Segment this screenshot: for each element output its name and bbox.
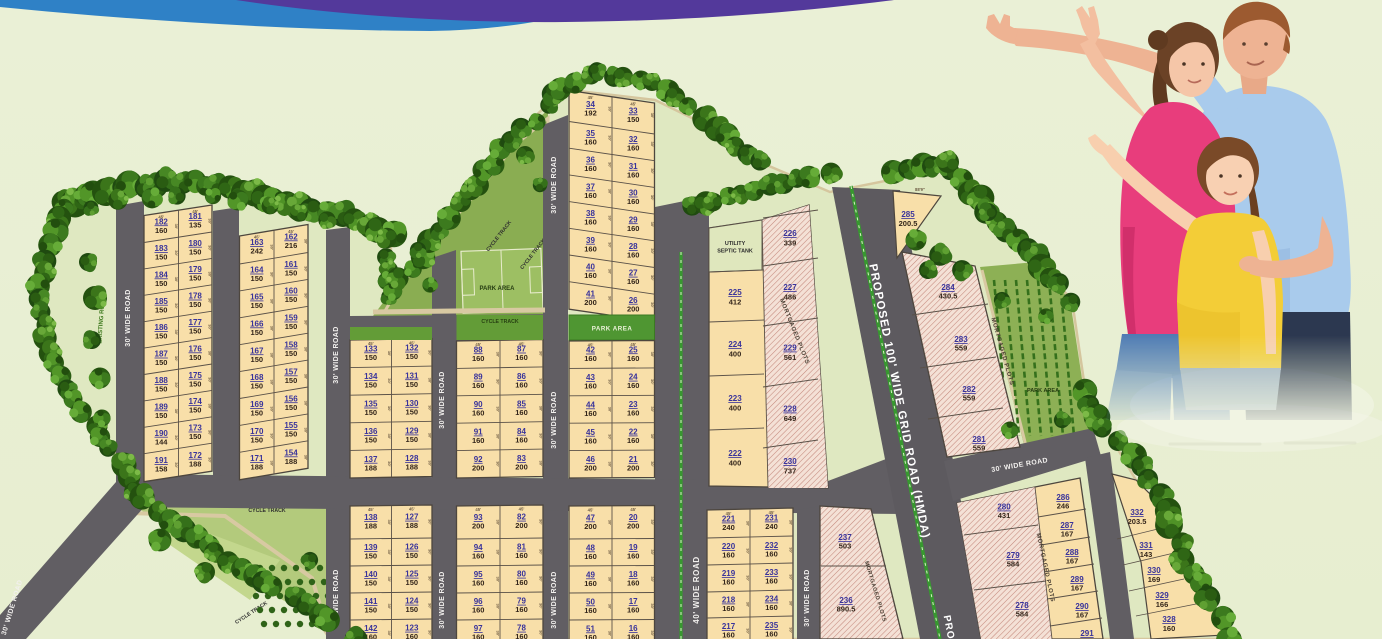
svg-text:30': 30' (208, 324, 213, 329)
svg-text:30': 30' (496, 576, 501, 581)
svg-text:30': 30' (496, 630, 501, 635)
svg-text:SEPTIC TANK: SEPTIC TANK (717, 249, 753, 255)
svg-text:150: 150 (251, 382, 264, 391)
svg-text:30': 30' (428, 460, 433, 465)
svg-text:229: 229 (783, 344, 797, 353)
svg-text:222: 222 (728, 449, 742, 458)
svg-text:30': 30' (539, 433, 544, 438)
svg-text:486: 486 (784, 293, 797, 302)
svg-text:30': 30' (650, 461, 655, 466)
svg-text:160: 160 (406, 632, 419, 639)
svg-text:158: 158 (155, 465, 168, 474)
svg-text:584: 584 (1016, 610, 1029, 619)
svg-text:30': 30' (650, 248, 655, 253)
svg-text:30': 30' (746, 628, 751, 633)
svg-text:160: 160 (584, 436, 597, 445)
svg-text:30': 30' (270, 460, 275, 465)
svg-text:30' WIDE ROAD: 30' WIDE ROAD (439, 571, 446, 628)
svg-text:45': 45' (409, 507, 415, 512)
svg-text:188: 188 (365, 463, 378, 472)
svg-text:30': 30' (208, 351, 213, 356)
svg-text:559: 559 (955, 344, 968, 353)
svg-text:150: 150 (189, 379, 202, 388)
svg-text:150: 150 (251, 328, 264, 337)
svg-text:30': 30' (304, 427, 309, 432)
svg-text:30': 30' (608, 296, 613, 301)
svg-text:PARK AREA: PARK AREA (592, 326, 633, 333)
svg-text:30': 30' (496, 379, 501, 384)
svg-text:30': 30' (650, 519, 655, 524)
svg-text:150: 150 (251, 301, 264, 310)
svg-text:160: 160 (765, 603, 778, 612)
svg-text:150: 150 (155, 305, 168, 314)
svg-text:30': 30' (608, 189, 613, 194)
svg-text:30': 30' (539, 549, 544, 554)
svg-text:30': 30' (746, 521, 751, 526)
svg-text:30': 30' (387, 433, 392, 438)
svg-text:CYCLE TRACK: CYCLE TRACK (481, 319, 518, 325)
svg-text:150: 150 (406, 407, 419, 416)
svg-text:30': 30' (608, 242, 613, 247)
svg-text:160: 160 (584, 552, 597, 561)
svg-text:30': 30' (387, 378, 392, 383)
svg-text:30': 30' (174, 224, 179, 229)
svg-text:150: 150 (189, 327, 202, 336)
svg-text:331: 331 (1139, 541, 1153, 550)
svg-text:30': 30' (539, 406, 544, 411)
svg-text:223: 223 (728, 394, 742, 403)
svg-text:30': 30' (304, 293, 309, 298)
svg-text:216: 216 (285, 241, 298, 250)
svg-text:332: 332 (1130, 508, 1144, 517)
svg-text:167: 167 (1076, 611, 1089, 620)
svg-text:30': 30' (650, 352, 655, 357)
svg-text:339: 339 (784, 239, 797, 248)
svg-text:160: 160 (515, 578, 528, 587)
svg-text:160: 160 (584, 138, 597, 147)
svg-text:30': 30' (496, 434, 501, 439)
svg-text:200: 200 (584, 298, 597, 307)
svg-text:150: 150 (189, 432, 202, 441)
svg-text:30': 30' (496, 519, 501, 524)
svg-text:30': 30' (208, 271, 213, 276)
svg-text:160: 160 (627, 251, 640, 260)
svg-text:30': 30' (789, 601, 794, 606)
svg-text:30': 30' (608, 520, 613, 525)
svg-text:200: 200 (472, 522, 485, 531)
svg-text:160: 160 (765, 577, 778, 586)
svg-text:30': 30' (208, 430, 213, 435)
svg-text:150: 150 (285, 403, 298, 412)
svg-text:30': 30' (428, 405, 433, 410)
svg-text:160: 160 (515, 632, 528, 639)
svg-text:167: 167 (1066, 557, 1079, 566)
svg-text:188: 188 (365, 522, 378, 531)
svg-text:30': 30' (539, 603, 544, 608)
svg-text:30': 30' (174, 250, 179, 255)
svg-text:160: 160 (584, 164, 597, 173)
svg-text:30': 30' (174, 435, 179, 440)
svg-text:200: 200 (584, 464, 597, 473)
svg-text:30': 30' (789, 627, 794, 632)
svg-text:160: 160 (584, 191, 597, 200)
svg-text:30': 30' (608, 407, 613, 412)
svg-text:45': 45' (630, 101, 636, 106)
svg-text:150: 150 (155, 385, 168, 394)
svg-text:330: 330 (1147, 566, 1161, 575)
svg-text:30': 30' (608, 461, 613, 466)
svg-text:200: 200 (627, 463, 640, 472)
svg-text:30': 30' (270, 379, 275, 384)
svg-text:200: 200 (627, 304, 640, 313)
svg-text:30': 30' (387, 576, 392, 581)
svg-text:30': 30' (387, 461, 392, 466)
svg-text:30': 30' (608, 269, 613, 274)
svg-text:30': 30' (304, 401, 309, 406)
svg-text:45': 45' (475, 342, 481, 347)
svg-text:30': 30' (270, 272, 275, 277)
svg-text:30': 30' (608, 550, 613, 555)
svg-text:45': 45' (288, 229, 294, 234)
svg-text:30' WIDE ROAD: 30' WIDE ROAD (439, 371, 446, 428)
svg-text:224: 224 (728, 340, 742, 349)
svg-text:150: 150 (285, 295, 298, 304)
svg-text:160: 160 (584, 633, 597, 639)
svg-text:160: 160 (515, 353, 528, 362)
svg-text:45': 45' (630, 342, 636, 347)
svg-text:150: 150 (406, 352, 419, 361)
svg-text:30': 30' (650, 141, 655, 146)
svg-text:30': 30' (270, 299, 275, 304)
svg-text:160: 160 (472, 633, 485, 639)
svg-text:30': 30' (304, 374, 309, 379)
svg-text:188: 188 (251, 463, 264, 472)
svg-text:561: 561 (784, 353, 797, 362)
svg-text:88'9": 88'9" (915, 187, 925, 192)
svg-text:30': 30' (746, 575, 751, 580)
svg-text:160: 160 (765, 630, 778, 639)
svg-text:200: 200 (472, 463, 485, 472)
svg-text:30': 30' (539, 576, 544, 581)
svg-text:30': 30' (428, 350, 433, 355)
svg-text:30': 30' (789, 520, 794, 525)
svg-text:160: 160 (627, 381, 640, 390)
svg-text:30': 30' (174, 382, 179, 387)
svg-text:30': 30' (387, 549, 392, 554)
svg-text:30' WIDE ROAD: 30' WIDE ROAD (125, 289, 132, 346)
svg-text:160: 160 (472, 436, 485, 445)
svg-text:160: 160 (627, 633, 640, 639)
svg-text:430.5: 430.5 (939, 292, 958, 301)
svg-text:503: 503 (839, 542, 852, 551)
svg-text:160: 160 (627, 144, 640, 153)
svg-text:30': 30' (608, 604, 613, 609)
svg-text:30': 30' (387, 351, 392, 356)
svg-text:45': 45' (519, 341, 525, 346)
svg-text:30': 30' (608, 577, 613, 582)
svg-text:150: 150 (365, 552, 378, 561)
svg-text:188: 188 (406, 521, 419, 530)
svg-text:240: 240 (722, 523, 735, 532)
svg-text:150: 150 (155, 332, 168, 341)
svg-text:329: 329 (1155, 591, 1169, 600)
svg-text:UTILITY: UTILITY (725, 241, 746, 247)
svg-text:30': 30' (608, 215, 613, 220)
svg-text:30' WIDE ROAD: 30' WIDE ROAD (551, 571, 558, 628)
svg-text:160: 160 (584, 218, 597, 227)
svg-text:30': 30' (539, 630, 544, 635)
svg-text:30': 30' (174, 356, 179, 361)
svg-text:30': 30' (387, 406, 392, 411)
svg-text:169: 169 (1148, 575, 1161, 584)
svg-text:150: 150 (365, 606, 378, 615)
svg-text:30': 30' (304, 347, 309, 352)
svg-text:45': 45' (519, 507, 525, 512)
svg-text:160: 160 (584, 271, 597, 280)
svg-text:30': 30' (428, 576, 433, 581)
svg-text:30': 30' (174, 303, 179, 308)
svg-text:200: 200 (584, 522, 597, 531)
svg-text:30': 30' (428, 519, 433, 524)
svg-text:30': 30' (304, 266, 309, 271)
svg-text:PARK AREA: PARK AREA (479, 286, 515, 292)
svg-text:CYCLE TRACK: CYCLE TRACK (248, 508, 285, 514)
svg-text:242: 242 (251, 247, 264, 256)
svg-text:160: 160 (584, 382, 597, 391)
svg-text:412: 412 (729, 298, 742, 307)
svg-text:45': 45' (588, 342, 594, 347)
svg-text:188: 188 (406, 463, 419, 472)
svg-text:200: 200 (627, 522, 640, 531)
svg-text:160: 160 (722, 578, 735, 587)
svg-text:167: 167 (1061, 530, 1074, 539)
svg-text:160: 160 (515, 435, 528, 444)
svg-text:150: 150 (285, 268, 298, 277)
svg-text:160: 160 (472, 409, 485, 418)
svg-text:400: 400 (729, 350, 742, 359)
svg-text:150: 150 (406, 380, 419, 389)
svg-text:30': 30' (650, 630, 655, 635)
svg-text:45': 45' (158, 214, 164, 219)
svg-text:150: 150 (251, 409, 264, 418)
svg-text:30': 30' (789, 574, 794, 579)
svg-text:30': 30' (650, 113, 655, 118)
svg-text:160: 160 (584, 354, 597, 363)
svg-text:30': 30' (270, 433, 275, 438)
svg-text:166: 166 (1156, 600, 1169, 609)
svg-text:160: 160 (627, 170, 640, 179)
svg-text:890.5: 890.5 (837, 605, 856, 614)
svg-text:160: 160 (627, 277, 640, 286)
svg-text:30': 30' (746, 602, 751, 607)
svg-text:30': 30' (608, 352, 613, 357)
svg-text:160: 160 (627, 197, 640, 206)
svg-text:45': 45' (254, 235, 260, 240)
svg-text:150: 150 (189, 353, 202, 362)
svg-text:150: 150 (365, 381, 378, 390)
svg-text:150: 150 (285, 322, 298, 331)
svg-text:160: 160 (584, 606, 597, 615)
svg-text:150: 150 (285, 349, 298, 358)
svg-text:30' WIDE ROAD: 30' WIDE ROAD (804, 569, 811, 626)
svg-text:30': 30' (174, 277, 179, 282)
svg-text:144: 144 (155, 437, 168, 446)
svg-text:30': 30' (304, 320, 309, 325)
svg-text:30': 30' (650, 434, 655, 439)
svg-text:30': 30' (174, 409, 179, 414)
svg-text:30': 30' (608, 162, 613, 167)
svg-text:30': 30' (496, 406, 501, 411)
svg-text:30': 30' (387, 603, 392, 608)
svg-text:649: 649 (784, 414, 797, 423)
svg-text:160: 160 (515, 381, 528, 390)
svg-text:30': 30' (270, 326, 275, 331)
svg-text:559: 559 (963, 394, 976, 403)
svg-text:167: 167 (1071, 584, 1084, 593)
svg-text:160: 160 (627, 579, 640, 588)
svg-text:160: 160 (472, 552, 485, 561)
svg-text:30': 30' (650, 603, 655, 608)
svg-text:150: 150 (285, 430, 298, 439)
svg-text:30': 30' (650, 168, 655, 173)
svg-text:PARK AREA: PARK AREA (1027, 388, 1059, 394)
svg-text:200: 200 (515, 521, 528, 530)
svg-text:30': 30' (428, 378, 433, 383)
svg-text:30': 30' (650, 379, 655, 384)
svg-text:246: 246 (1057, 502, 1070, 511)
svg-text:150: 150 (285, 376, 298, 385)
svg-text:30': 30' (650, 222, 655, 227)
svg-text:160: 160 (722, 604, 735, 613)
svg-text:285: 285 (901, 210, 915, 219)
svg-text:150: 150 (627, 115, 640, 124)
svg-text:150: 150 (189, 406, 202, 415)
svg-text:30' WIDE ROAD: 30' WIDE ROAD (551, 391, 558, 448)
svg-text:328: 328 (1162, 615, 1176, 624)
svg-text:227: 227 (783, 283, 797, 292)
svg-text:45': 45' (588, 95, 594, 100)
svg-text:150: 150 (251, 436, 264, 445)
svg-text:45': 45' (769, 510, 775, 515)
svg-text:150: 150 (189, 247, 202, 256)
svg-text:45': 45' (630, 507, 636, 512)
svg-text:160: 160 (472, 354, 485, 363)
svg-text:203.5: 203.5 (1128, 517, 1147, 526)
svg-text:150: 150 (251, 355, 264, 364)
svg-text:30': 30' (208, 377, 213, 382)
svg-text:30': 30' (270, 406, 275, 411)
svg-text:45': 45' (409, 340, 415, 345)
svg-text:45': 45' (588, 507, 594, 512)
svg-text:30': 30' (270, 353, 275, 358)
svg-text:30': 30' (387, 519, 392, 524)
svg-text:150: 150 (155, 358, 168, 367)
svg-text:160: 160 (627, 354, 640, 363)
svg-text:160: 160 (155, 226, 168, 235)
svg-text:30': 30' (608, 631, 613, 636)
svg-text:150: 150 (406, 605, 419, 614)
svg-text:30': 30' (539, 351, 544, 356)
svg-text:135: 135 (189, 221, 202, 230)
svg-text:30': 30' (428, 603, 433, 608)
svg-text:150: 150 (406, 435, 419, 444)
svg-text:30': 30' (208, 457, 213, 462)
svg-text:150: 150 (155, 253, 168, 262)
svg-text:30': 30' (270, 244, 275, 249)
svg-text:192: 192 (584, 109, 597, 118)
svg-text:400: 400 (729, 459, 742, 468)
svg-text:30': 30' (304, 239, 309, 244)
svg-text:200.5: 200.5 (899, 219, 918, 228)
svg-text:584: 584 (1007, 560, 1020, 569)
svg-text:226: 226 (783, 229, 797, 238)
svg-text:30': 30' (496, 603, 501, 608)
svg-text:30': 30' (650, 195, 655, 200)
svg-text:188: 188 (189, 459, 202, 468)
svg-text:160: 160 (515, 408, 528, 417)
svg-text:30': 30' (387, 630, 392, 635)
svg-text:30': 30' (539, 460, 544, 465)
svg-text:45': 45' (192, 209, 198, 214)
svg-text:30': 30' (650, 549, 655, 554)
svg-text:30' WIDE ROAD: 30' WIDE ROAD (333, 326, 340, 383)
svg-text:30': 30' (608, 135, 613, 140)
svg-text:30': 30' (174, 462, 179, 467)
svg-text:30': 30' (208, 298, 213, 303)
svg-text:30': 30' (208, 403, 213, 408)
svg-text:150: 150 (365, 579, 378, 588)
svg-text:30': 30' (650, 302, 655, 307)
svg-text:30': 30' (496, 352, 501, 357)
svg-text:160: 160 (765, 550, 778, 559)
svg-text:240: 240 (765, 522, 778, 531)
svg-text:160: 160 (472, 579, 485, 588)
svg-text:160: 160 (515, 605, 528, 614)
svg-text:160: 160 (627, 606, 640, 615)
svg-text:30': 30' (496, 549, 501, 554)
svg-text:30': 30' (428, 549, 433, 554)
svg-text:150: 150 (406, 578, 419, 587)
svg-text:45': 45' (475, 507, 481, 512)
svg-text:160: 160 (627, 436, 640, 445)
svg-text:30': 30' (789, 547, 794, 552)
svg-text:160: 160 (584, 244, 597, 253)
svg-text:160: 160 (722, 551, 735, 560)
svg-text:143: 143 (1140, 550, 1153, 559)
svg-text:30': 30' (608, 434, 613, 439)
svg-text:30' WIDE ROAD: 30' WIDE ROAD (551, 156, 558, 213)
svg-text:30': 30' (208, 218, 213, 223)
svg-text:737: 737 (784, 467, 797, 476)
svg-text:150: 150 (365, 408, 378, 417)
svg-text:160: 160 (584, 579, 597, 588)
svg-text:160: 160 (1163, 624, 1176, 633)
svg-text:30': 30' (304, 455, 309, 460)
svg-text:30': 30' (428, 630, 433, 635)
svg-text:228: 228 (783, 405, 797, 414)
svg-text:150: 150 (365, 353, 378, 362)
svg-text:150: 150 (189, 274, 202, 283)
svg-text:150: 150 (365, 436, 378, 445)
svg-text:150: 150 (155, 411, 168, 420)
svg-text:160: 160 (627, 224, 640, 233)
svg-text:160: 160 (584, 409, 597, 418)
svg-text:30': 30' (496, 461, 501, 466)
svg-text:30': 30' (174, 329, 179, 334)
svg-text:160: 160 (627, 552, 640, 561)
svg-text:400: 400 (729, 404, 742, 413)
svg-text:30': 30' (539, 378, 544, 383)
